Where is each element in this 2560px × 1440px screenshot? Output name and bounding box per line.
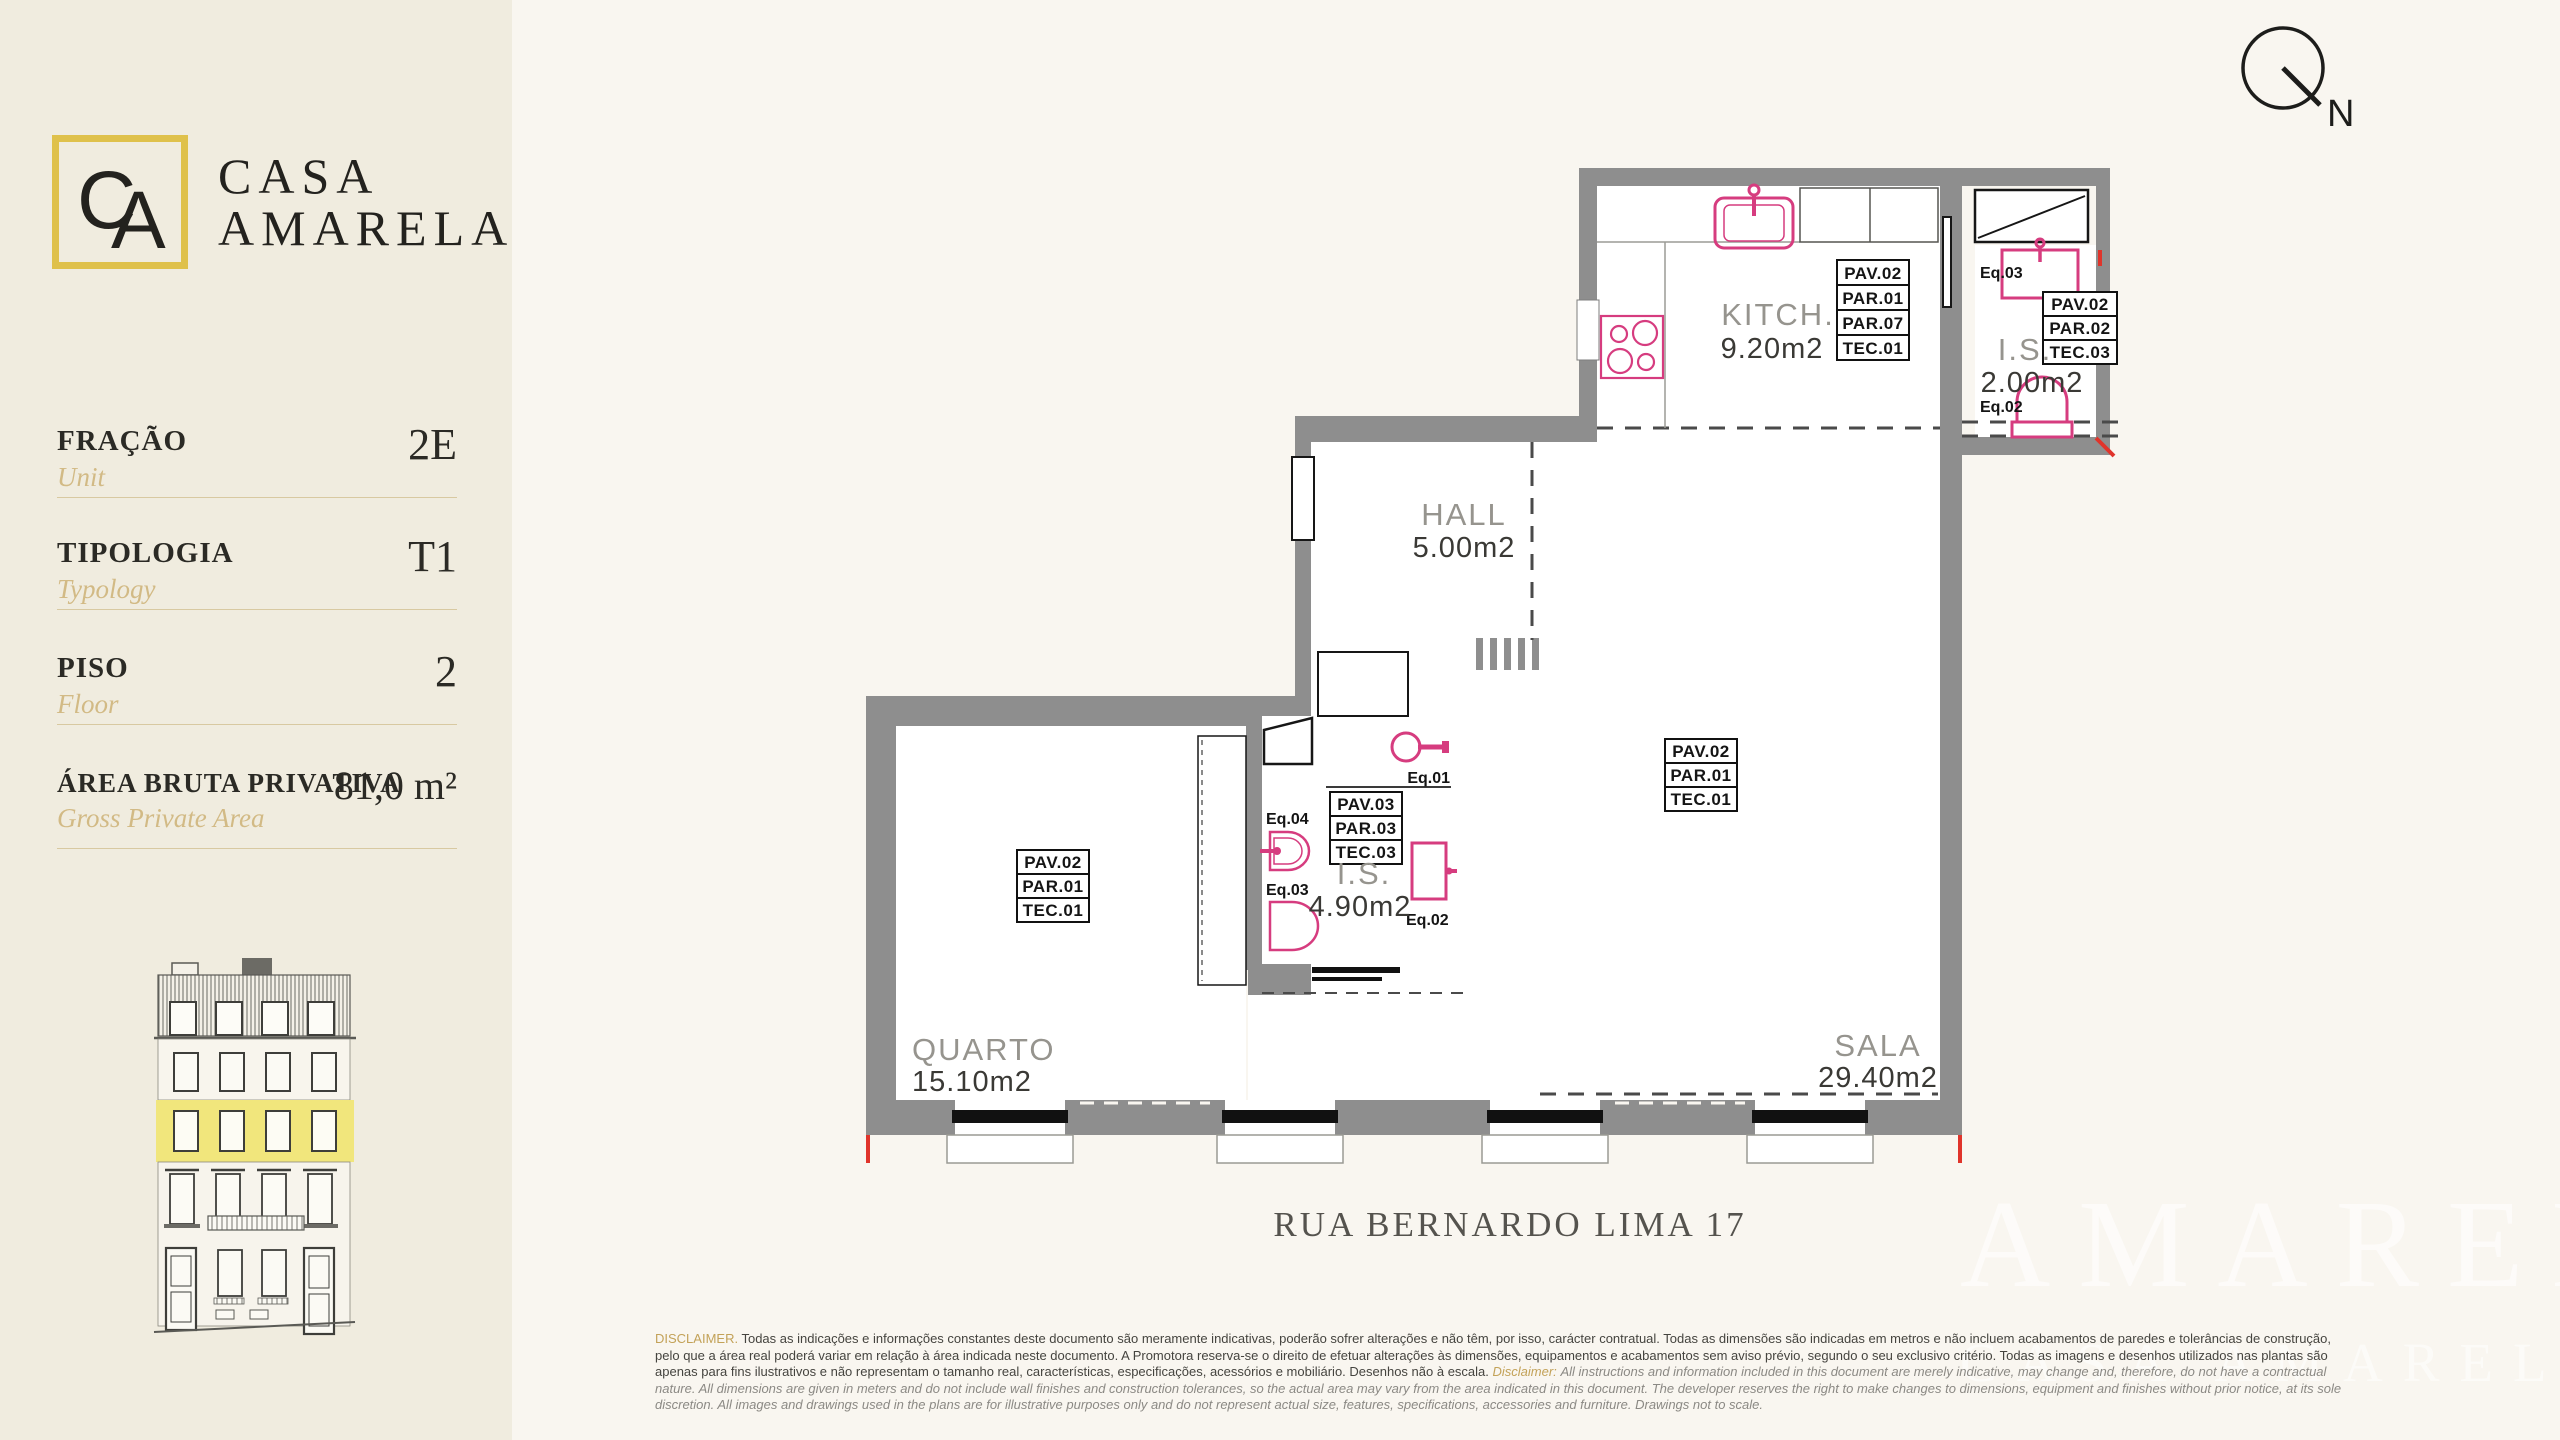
brand-name-line2: AMARELA [218, 202, 514, 254]
tag: PAR.01 [1670, 766, 1731, 785]
hall-wardrobe [1318, 652, 1408, 716]
eq-label: Eq.03 [1980, 265, 2023, 282]
brand-logo: C A CASA AMARELA [52, 135, 514, 269]
north-arrow-icon: N [2225, 10, 2385, 150]
info-label: FRAÇÃO [57, 425, 457, 458]
bedroom-closet [1198, 736, 1246, 985]
tag: PAR.03 [1335, 819, 1396, 838]
tags-wc-main: PAV.03 PAR.03 TEC.03 [1330, 792, 1402, 864]
divider [57, 848, 457, 849]
tags-kitchen: PAV.02 PAR.01 PAR.07 TEC.01 [1837, 260, 1909, 360]
divider [57, 609, 457, 610]
tag: PAV.02 [1844, 264, 1902, 283]
room-name-wc-main: I.S. [1337, 856, 1392, 891]
tag: PAV.02 [1672, 742, 1730, 761]
disclaimer-label-pt: DISCLAIMER. [655, 1331, 738, 1346]
eq-label: Eq.04 [1266, 811, 1309, 828]
eq-label: Eq.01 [1407, 770, 1450, 787]
room-name-bedroom: QUARTO [912, 1032, 1056, 1067]
info-value: T1 [408, 531, 457, 582]
info-value: 81,0 m² [334, 762, 457, 809]
tag: PAV.03 [1337, 795, 1395, 814]
room-area-living: 29.40m2 [1818, 1062, 1938, 1094]
tags-wc-small: PAV.02 PAR.02 TEC.03 [2043, 292, 2117, 364]
brand-name-line1: CASA [218, 150, 514, 202]
room-area-kitchen: 9.20m2 [1721, 333, 1824, 365]
eq-label: Eq.02 [1980, 399, 2023, 416]
info-sublabel: Unit [57, 462, 457, 493]
info-sublabel: Typology [57, 574, 457, 605]
tag: PAR.01 [1842, 289, 1903, 308]
bathroom-door-threshold [1312, 967, 1400, 973]
info-label: PISO [57, 652, 457, 685]
disclaimer-label-en: Disclaimer: [1493, 1364, 1557, 1379]
tag: TEC.03 [2050, 343, 2111, 362]
eq-label: Eq.03 [1266, 882, 1309, 899]
floor-plan-sheet: { "brand": { "monogram_c": "C", "monogra… [0, 0, 2560, 1440]
north-label: N [2327, 93, 2354, 135]
eq-label: Eq.02 [1406, 912, 1449, 929]
room-area-wc-main: 4.90m2 [1309, 891, 1412, 923]
info-value: 2 [435, 646, 457, 697]
kitchen-shaft-window [1577, 300, 1599, 360]
room-name-hall: HALL [1421, 497, 1507, 532]
room-area-bedroom: 15.10m2 [912, 1066, 1032, 1098]
bathroom-door-threshold [1312, 977, 1382, 981]
room-name-kitchen: KITCH. [1721, 297, 1835, 332]
tags-living: PAV.02 PAR.01 TEC.01 [1665, 739, 1737, 811]
room-area-hall: 5.00m2 [1413, 532, 1516, 564]
tag: TEC.01 [1023, 901, 1084, 920]
divider [57, 724, 457, 725]
balcony-railing [208, 1216, 304, 1230]
floor-plan: PAV.02 PAR.01 PAR.07 TEC.01 PAV.02 PAR.0… [840, 150, 2130, 1170]
building-elevation-drawing [150, 958, 360, 1338]
room-name-living: SALA [1834, 1028, 1921, 1063]
info-row-area: ÁREA BRUTA PRIVATIVA Gross Private Area … [57, 768, 457, 834]
brand-name: CASA AMARELA [218, 150, 514, 254]
tag: PAV.02 [2051, 295, 2109, 314]
tag: PAR.02 [2049, 319, 2110, 338]
brand-monogram-icon: C A [52, 135, 188, 269]
address: RUA BERNARDO LIMA 17 [1273, 1205, 1746, 1245]
info-row-fracao: FRAÇÃO Unit 2E [57, 425, 457, 493]
tags-bedroom: PAV.02 PAR.01 TEC.01 [1017, 850, 1089, 922]
disclaimer: DISCLAIMER. Todas as indicações e inform… [655, 1331, 2355, 1414]
entrance-door [1292, 457, 1314, 540]
room-area-wc-small: 2.00m2 [1981, 367, 2084, 399]
sidebar: C A CASA AMARELA FRAÇÃO Unit 2E TIPOLOGI… [0, 0, 512, 1440]
window-top-right [1975, 190, 2088, 242]
tag: TEC.01 [1671, 790, 1732, 809]
tag: PAR.07 [1842, 314, 1903, 333]
divider [57, 497, 457, 498]
pocket-door [1943, 217, 1951, 307]
tag: PAV.02 [1024, 853, 1082, 872]
tag: TEC.01 [1843, 339, 1904, 358]
tag: PAR.01 [1022, 877, 1083, 896]
info-sublabel: Floor [57, 689, 457, 720]
info-label: TIPOLOGIA [57, 537, 457, 570]
chimney [172, 963, 198, 975]
info-row-piso: PISO Floor 2 [57, 652, 457, 720]
chimney [242, 958, 272, 975]
info-row-tipologia: TIPOLOGIA Typology T1 [57, 537, 457, 605]
room-name-wc-small: I.S. [1998, 332, 2053, 367]
info-value: 2E [408, 419, 457, 470]
monogram-a: A [111, 175, 166, 262]
